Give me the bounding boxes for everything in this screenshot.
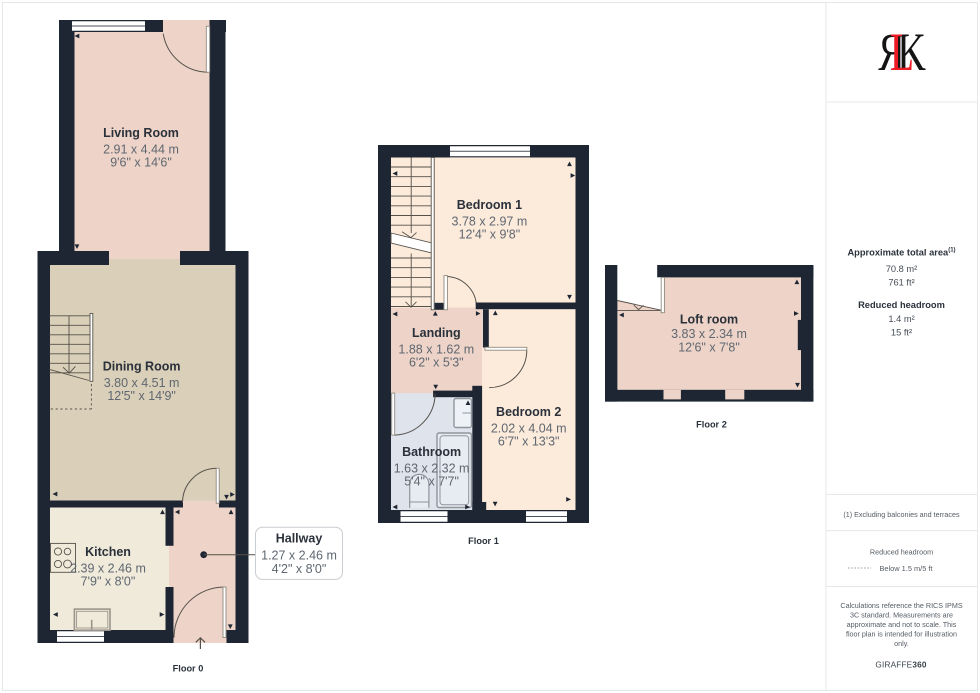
svg-text:4'2" x 8'0": 4'2" x 8'0" bbox=[272, 562, 327, 576]
svg-text:Floor 0: Floor 0 bbox=[173, 664, 204, 674]
svg-text:12'4" x 9'8": 12'4" x 9'8" bbox=[459, 228, 521, 242]
svg-text:only.: only. bbox=[894, 639, 909, 648]
svg-text:1.63 x 2.32 m: 1.63 x 2.32 m bbox=[394, 462, 470, 476]
svg-text:6'2" x 5'3": 6'2" x 5'3" bbox=[409, 356, 464, 370]
svg-text:approximate and not to scale.: approximate and not to scale. This bbox=[847, 620, 957, 629]
svg-text:7'9" x 8'0": 7'9" x 8'0" bbox=[81, 575, 136, 589]
svg-text:761 ft²: 761 ft² bbox=[888, 278, 914, 288]
svg-text:1.88 x 1.62 m: 1.88 x 1.62 m bbox=[398, 343, 474, 357]
svg-text:Dining Room: Dining Room bbox=[103, 359, 181, 373]
svg-text:Bedroom 2: Bedroom 2 bbox=[496, 405, 561, 419]
svg-text:12'5" x 14'9": 12'5" x 14'9" bbox=[107, 389, 176, 403]
svg-text:3.83 x 2.34 m: 3.83 x 2.34 m bbox=[671, 327, 747, 341]
svg-text:Kitchen: Kitchen bbox=[85, 545, 131, 559]
svg-text:Landing: Landing bbox=[412, 326, 461, 340]
svg-text:Floor 1: Floor 1 bbox=[468, 536, 499, 546]
svg-text:Floor 2: Floor 2 bbox=[696, 420, 727, 430]
svg-text:9'6" x 14'6": 9'6" x 14'6" bbox=[110, 156, 172, 170]
svg-text:3.78 x 2.97 m: 3.78 x 2.97 m bbox=[452, 215, 528, 229]
svg-text:Below 1.5 m/5 ft: Below 1.5 m/5 ft bbox=[880, 564, 933, 573]
svg-text:Hallway: Hallway bbox=[276, 532, 323, 546]
svg-text:1.4 m²: 1.4 m² bbox=[888, 314, 914, 324]
svg-text:GIRAFFE360: GIRAFFE360 bbox=[875, 661, 926, 670]
svg-text:3.80 x 4.51 m: 3.80 x 4.51 m bbox=[104, 376, 180, 390]
svg-text:Living Room: Living Room bbox=[103, 126, 179, 140]
svg-text:(1) Excluding balconies and te: (1) Excluding balconies and terraces bbox=[843, 510, 960, 519]
svg-text:6'7" x 13'3": 6'7" x 13'3" bbox=[498, 435, 560, 449]
svg-text:5'4" x 7'7": 5'4" x 7'7" bbox=[404, 475, 459, 489]
svg-text:Reduced headroom: Reduced headroom bbox=[870, 548, 933, 557]
svg-text:Approximate total area(1): Approximate total area(1) bbox=[847, 248, 955, 258]
svg-text:1.27 x 2.46 m: 1.27 x 2.46 m bbox=[261, 549, 337, 563]
svg-text:3C standard. Measurements are: 3C standard. Measurements are bbox=[850, 611, 953, 620]
svg-text:70.8 m²: 70.8 m² bbox=[886, 264, 918, 274]
svg-text:L: L bbox=[890, 23, 914, 82]
svg-text:Loft room: Loft room bbox=[680, 313, 738, 327]
svg-text:2.39 x 2.46 m: 2.39 x 2.46 m bbox=[70, 562, 146, 576]
svg-text:15 ft²: 15 ft² bbox=[891, 328, 912, 338]
svg-text:Calculations reference the RIC: Calculations reference the RICS IPMS bbox=[840, 601, 962, 610]
svg-text:2.91 x 4.44 m: 2.91 x 4.44 m bbox=[103, 143, 179, 157]
svg-text:12'6" x 7'8": 12'6" x 7'8" bbox=[678, 341, 740, 355]
svg-text:Bedroom 1: Bedroom 1 bbox=[457, 198, 522, 212]
svg-text:floor plan is intended for ill: floor plan is intended for illustration bbox=[846, 630, 957, 639]
svg-text:Reduced headroom: Reduced headroom bbox=[858, 300, 945, 310]
svg-text:2.02 x 4.04 m: 2.02 x 4.04 m bbox=[491, 422, 567, 436]
svg-text:Bathroom: Bathroom bbox=[402, 445, 461, 459]
